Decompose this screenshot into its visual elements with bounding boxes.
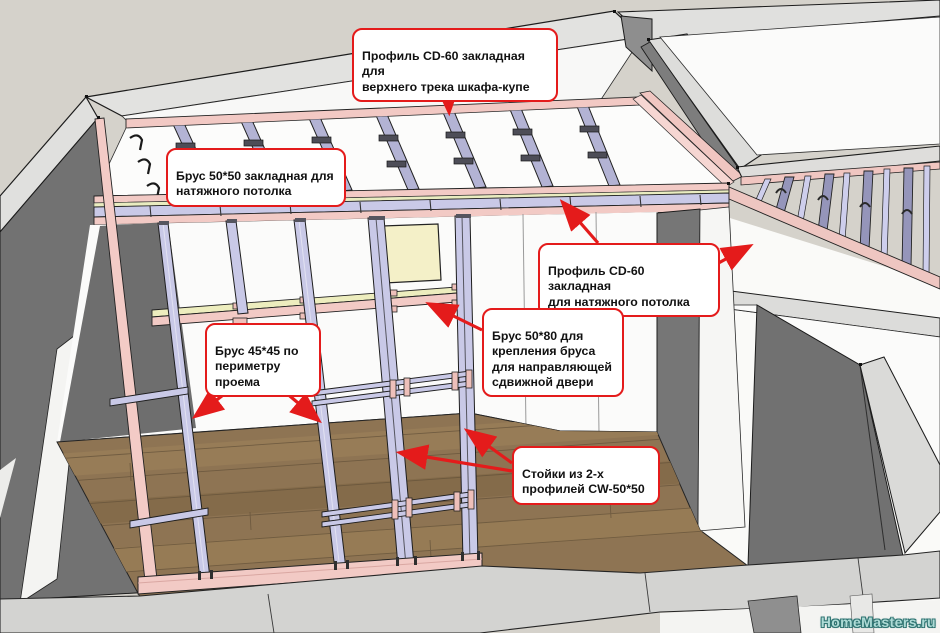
callout-text: Стойки из 2-х профилей CW-50*50 — [522, 467, 645, 496]
callout-text: Брус 50*80 для крепления бруса для напра… — [492, 329, 612, 389]
callout-brus-45x45: Брус 45*45 по периметру проема — [205, 323, 321, 397]
callout-cd60-ceiling: Профиль CD-60 закладная для натяжного по… — [538, 243, 720, 317]
callout-text: Брус 45*45 по периметру проема — [215, 344, 298, 388]
callout-brus-50x80: Брус 50*80 для крепления бруса для напра… — [482, 308, 624, 397]
callout-text: Брус 50*50 закладная для натяжного потол… — [176, 169, 334, 198]
callout-text: Профиль CD-60 закладная для натяжного по… — [548, 264, 690, 308]
yellow-panel — [382, 224, 441, 283]
callout-cw-stands: Стойки из 2-х профилей CW-50*50 — [512, 446, 660, 505]
callout-brus-50x50: Брус 50*50 закладная для натяжного потол… — [166, 148, 346, 207]
construction-diagram: Профиль CD-60 закладная для верхнего тре… — [0, 0, 940, 633]
watermark: HomeMasters.ru — [821, 615, 936, 629]
callout-text: Профиль CD-60 закладная для верхнего тре… — [362, 49, 530, 93]
callout-cd60-top-track: Профиль CD-60 закладная для верхнего тре… — [352, 28, 558, 102]
